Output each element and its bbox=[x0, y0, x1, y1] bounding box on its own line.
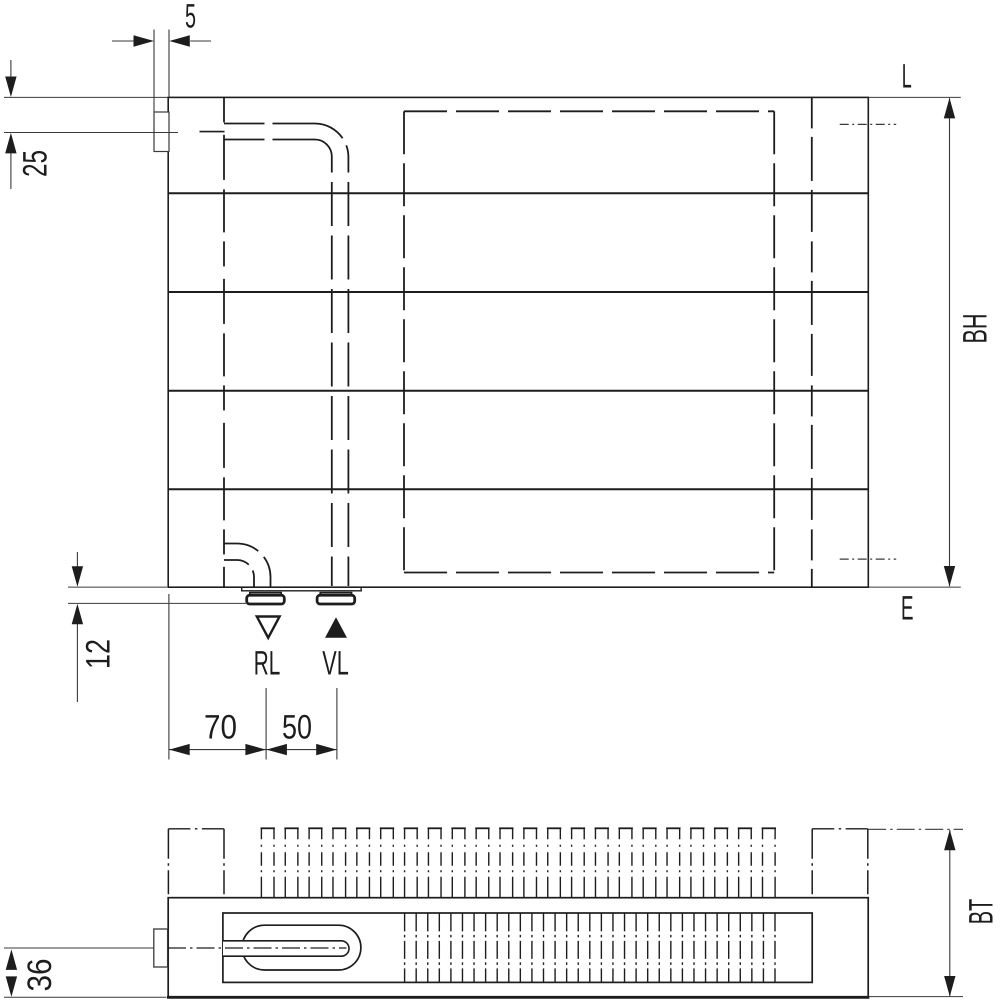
svg-text:70: 70 bbox=[204, 709, 237, 747]
svg-text:5: 5 bbox=[185, 0, 196, 36]
svg-text:25: 25 bbox=[17, 150, 55, 177]
svg-text:50: 50 bbox=[282, 709, 312, 747]
svg-text:36: 36 bbox=[21, 959, 59, 992]
svg-text:12: 12 bbox=[80, 639, 118, 669]
svg-text:BH: BH bbox=[957, 314, 995, 344]
svg-text:RL: RL bbox=[254, 645, 281, 683]
svg-text:E: E bbox=[901, 590, 914, 628]
svg-text:L: L bbox=[902, 58, 912, 96]
svg-text:VL: VL bbox=[322, 645, 349, 683]
svg-text:BT: BT bbox=[963, 899, 1000, 925]
